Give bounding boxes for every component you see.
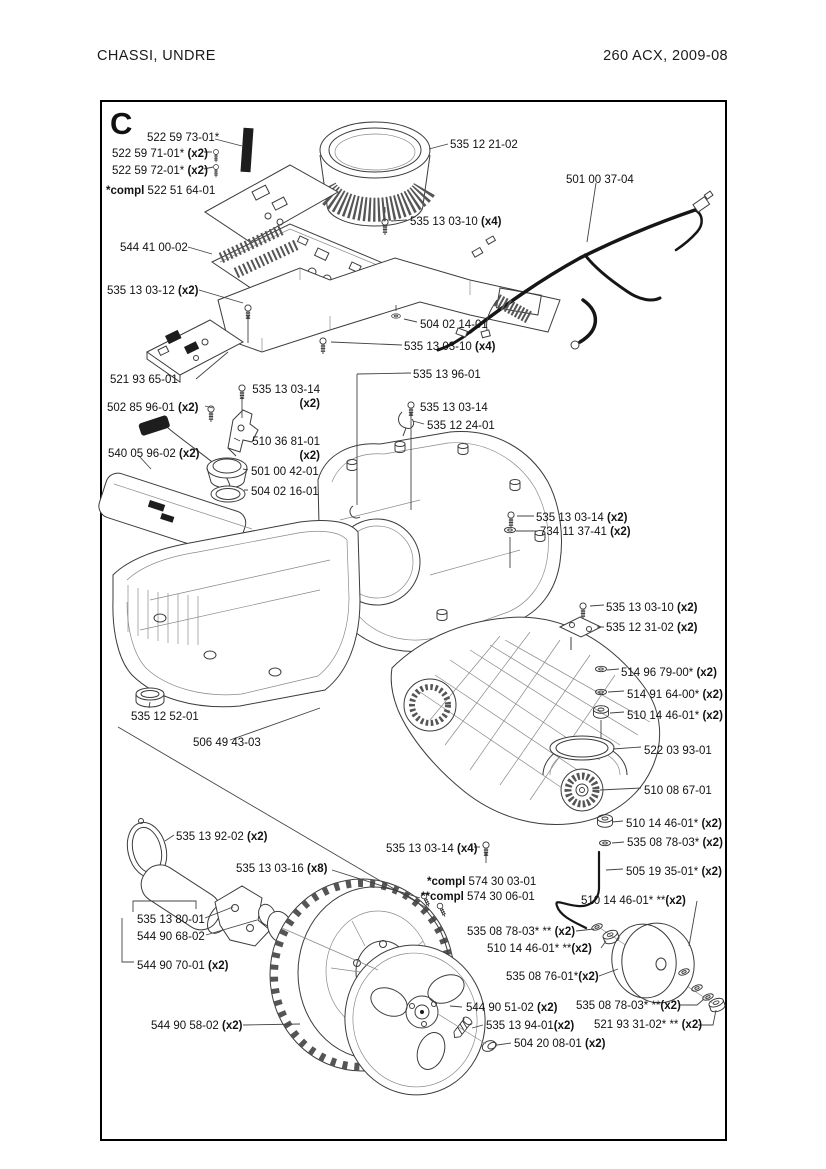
rear-chassis bbox=[391, 617, 659, 824]
part-label: 544 90 51-02 (x2) bbox=[466, 1001, 557, 1015]
antenna-board bbox=[205, 165, 338, 242]
antenna-bar bbox=[240, 128, 253, 173]
part-label: 540 05 96-02 (x2) bbox=[108, 447, 199, 461]
part-label: 514 91 64-00* (x2) bbox=[627, 688, 723, 702]
arch-wheel bbox=[561, 769, 603, 811]
screw-icon bbox=[580, 603, 586, 619]
part-label: 535 12 52-01 bbox=[131, 710, 199, 724]
part-label: 734 11 37-41 (x2) bbox=[540, 525, 631, 539]
part-label: 535 08 78-03* ** (x2) bbox=[467, 925, 575, 939]
part-label: 510 14 46-01* **(x2) bbox=[487, 942, 592, 956]
part-label: 544 41 00-02 bbox=[120, 241, 188, 255]
part-label: 544 90 58-02 (x2) bbox=[151, 1019, 242, 1033]
part-label: 510 14 46-01* **(x2) bbox=[581, 894, 686, 908]
part-label: **compl 574 30 06-01 bbox=[421, 890, 535, 904]
part-label: *compl 574 30 03-01 bbox=[427, 875, 536, 889]
part-label: 535 13 03-12 (x2) bbox=[107, 284, 198, 298]
part-label: 504 02 16-01 bbox=[251, 485, 319, 499]
parts-diagram-page: CHASSI, UNDRE 260 ACX, 2009-08 C bbox=[0, 0, 826, 1169]
screw-icon bbox=[320, 338, 326, 354]
part-label: 501 00 42-01 bbox=[251, 465, 319, 479]
part-label: 535 13 03-16 (x8) bbox=[236, 862, 327, 876]
washer-icon bbox=[591, 923, 603, 932]
screw-icon bbox=[436, 902, 447, 917]
part-label: 535 13 03-14 bbox=[420, 401, 488, 415]
part-label: 535 08 78-03* (x2) bbox=[627, 836, 723, 850]
part-label: 514 96 79-00* (x2) bbox=[621, 666, 717, 680]
part-label: 535 08 78-03* **(x2) bbox=[576, 999, 681, 1013]
part-label: 510 36 81-01(x2) bbox=[236, 435, 320, 464]
screw-icon bbox=[214, 165, 219, 178]
washer-icon bbox=[691, 984, 703, 993]
part-label: 510 08 67-01 bbox=[644, 784, 712, 798]
part-label: 504 20 08-01 (x2) bbox=[514, 1037, 605, 1051]
part-label: 535 13 03-14 (x4) bbox=[386, 842, 477, 856]
part-label: 522 59 73-01* bbox=[147, 131, 219, 145]
part-label: 522 03 93-01 bbox=[644, 744, 712, 758]
part-label: 535 13 03-10 (x2) bbox=[606, 601, 697, 615]
part-label: 535 13 03-14 (x2) bbox=[536, 511, 627, 525]
grommet-icon bbox=[392, 314, 401, 318]
part-label: 521 93 31-02* ** (x2) bbox=[594, 1018, 702, 1032]
part-label: 535 13 03-10 (x4) bbox=[410, 215, 501, 229]
part-label: 522 59 72-01* (x2) bbox=[112, 164, 208, 178]
part-label: 521 93 65-01 bbox=[110, 373, 178, 387]
part-label: 510 14 46-01* (x2) bbox=[626, 817, 722, 831]
axle-rod bbox=[556, 852, 599, 928]
part-label: 535 12 24-01 bbox=[427, 419, 495, 433]
screw-icon bbox=[382, 219, 388, 235]
part-label: 510 14 46-01* (x2) bbox=[627, 709, 723, 723]
washer-icon bbox=[600, 840, 611, 845]
part-label: 504 02 14-01 bbox=[420, 318, 488, 332]
lower-chassis bbox=[113, 520, 360, 706]
part-label: 544 90 68-02 bbox=[137, 930, 205, 944]
part-label: 505 19 35-01* (x2) bbox=[626, 865, 722, 879]
sensor-cup bbox=[207, 458, 247, 502]
screw-icon bbox=[208, 406, 214, 422]
part-label: 501 00 37-04 bbox=[566, 173, 634, 187]
part-label: 544 90 70-01 (x2) bbox=[137, 959, 228, 973]
part-label: 535 13 03-10 (x4) bbox=[404, 340, 495, 354]
part-label: 522 59 71-01* (x2) bbox=[112, 147, 208, 161]
part-label: *compl 522 51 64-01 bbox=[106, 184, 215, 198]
part-label: 506 49 43-03 bbox=[193, 736, 261, 750]
part-label: 535 12 21-02 bbox=[450, 138, 518, 152]
part-label: 535 13 80-01 bbox=[137, 913, 205, 927]
screw-icon bbox=[214, 150, 219, 163]
ring-gasket bbox=[550, 736, 614, 760]
part-label: 502 85 96-01 (x2) bbox=[107, 401, 198, 415]
part-label: 535 12 31-02 (x2) bbox=[606, 621, 697, 635]
part-label: 535 13 92-02 (x2) bbox=[176, 830, 267, 844]
part-label: 535 13 94-01(x2) bbox=[486, 1019, 574, 1033]
part-label: 535 13 03-14(x2) bbox=[236, 383, 320, 412]
part-label: 535 13 96-01 bbox=[413, 368, 481, 382]
fan-drum bbox=[320, 122, 430, 226]
part-label: 535 08 76-01*(x2) bbox=[506, 970, 599, 984]
